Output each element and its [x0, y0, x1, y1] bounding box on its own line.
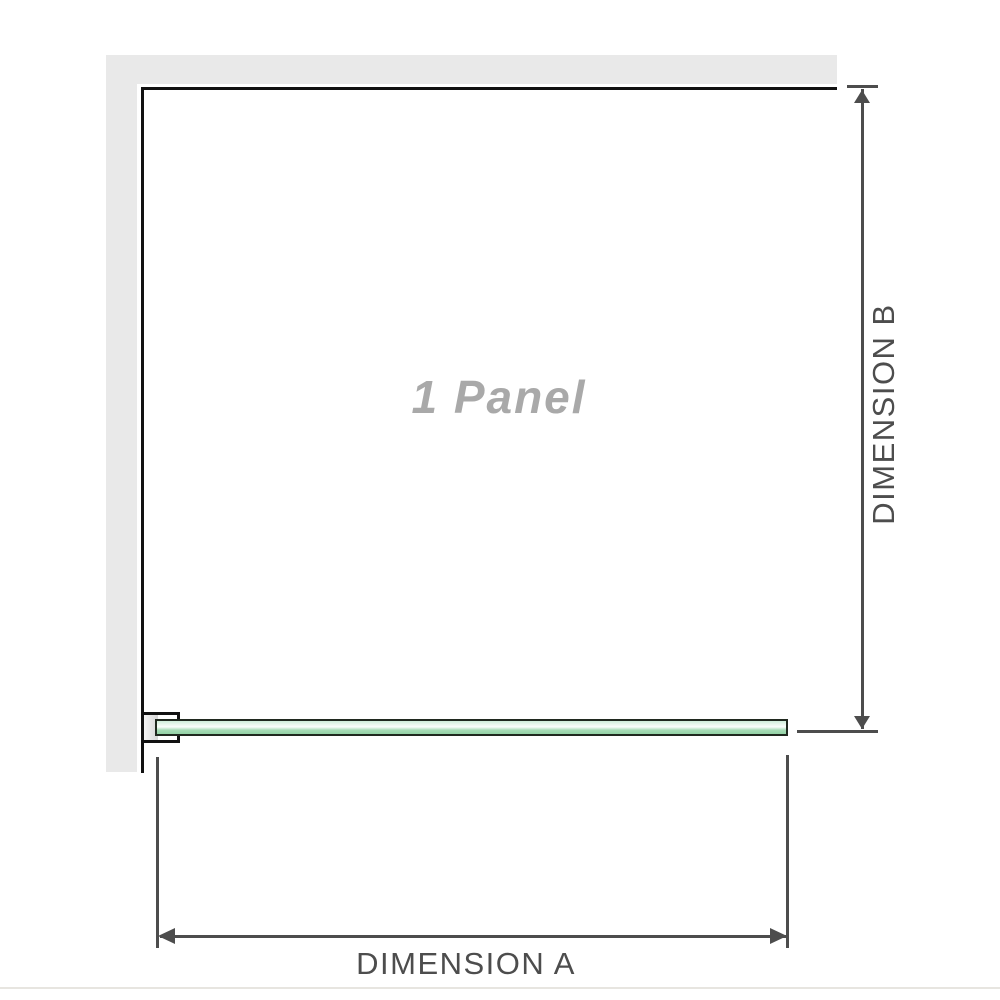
glass-panel: [155, 719, 788, 736]
arrowhead-left-icon: [158, 928, 175, 944]
shower-panel-dimension-diagram: 1 Panel DIMENSION B DIMENSION A: [0, 0, 1000, 1000]
panel-label: 1 Panel: [411, 370, 586, 424]
dimension-a-right-extension-line: [786, 755, 789, 948]
page-divider: [0, 987, 1000, 989]
arrowhead-up-icon: [854, 90, 870, 103]
dimension-a-line: [160, 935, 787, 938]
arrowhead-down-icon: [854, 716, 870, 729]
dimension-b-label: DIMENSION B: [866, 303, 902, 524]
wall-left-segment: [106, 55, 137, 772]
dimension-b-bottom-tick: [797, 730, 878, 733]
dimension-b-top-tick: [847, 85, 878, 88]
wall-top-segment: [106, 55, 837, 84]
dimension-a-label: DIMENSION A: [356, 946, 576, 982]
panel-outline: [141, 87, 837, 773]
dimension-b-line: [861, 89, 864, 729]
arrowhead-right-icon: [770, 928, 787, 944]
dimension-a-left-extension-line: [156, 757, 159, 948]
